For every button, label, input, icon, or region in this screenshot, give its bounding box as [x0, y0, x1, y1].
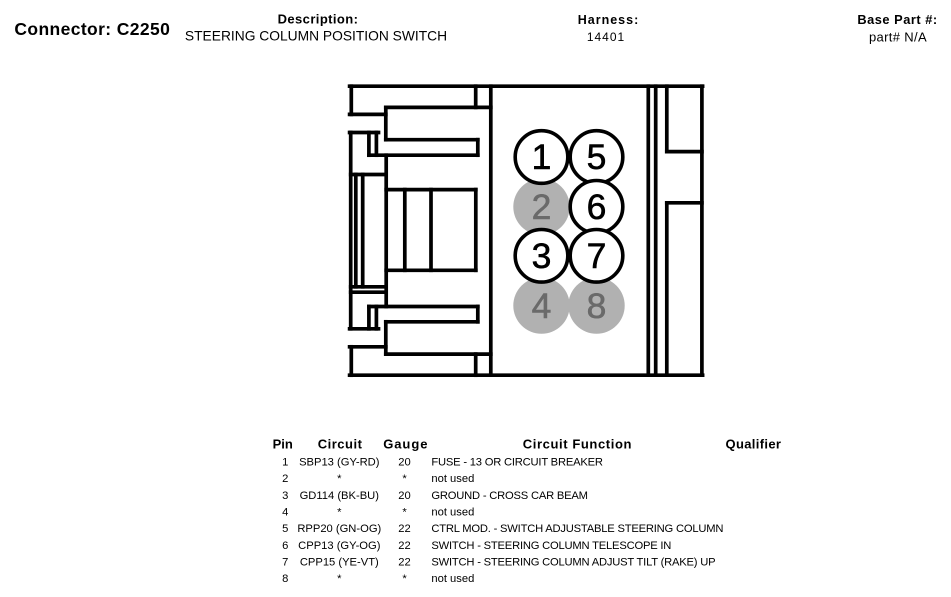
svg-text:*: * [337, 507, 342, 519]
svg-text:not used: not used [431, 507, 474, 519]
svg-text:20: 20 [398, 490, 410, 502]
svg-text:GROUND - CROSS CAR BEAM: GROUND - CROSS CAR BEAM [431, 490, 587, 502]
svg-text:Gauge: Gauge [383, 436, 428, 451]
svg-text:not used: not used [431, 473, 474, 485]
svg-text:*: * [337, 473, 342, 485]
svg-text:FUSE - 13 OR CIRCUIT BREAKER: FUSE - 13 OR CIRCUIT BREAKER [431, 456, 602, 468]
svg-text:part# N/A: part# N/A [869, 30, 927, 45]
svg-text:Base Part #:: Base Part #: [857, 12, 937, 27]
svg-text:GD114 (BK-BU): GD114 (BK-BU) [300, 490, 380, 502]
svg-text:2: 2 [282, 473, 288, 485]
svg-text:3: 3 [532, 236, 552, 276]
svg-text:SBP13 (GY-RD): SBP13 (GY-RD) [299, 456, 380, 468]
svg-text:22: 22 [398, 523, 410, 535]
svg-text:RPP20 (GN-OG): RPP20 (GN-OG) [297, 523, 381, 535]
svg-text:*: * [402, 473, 407, 485]
svg-text:4: 4 [282, 507, 288, 519]
svg-text:1: 1 [282, 456, 288, 468]
svg-text:6: 6 [587, 187, 607, 227]
svg-text:22: 22 [398, 540, 410, 552]
svg-text:Circuit Function: Circuit Function [523, 436, 632, 451]
svg-text:CTRL MOD. - SWITCH ADJUSTABLE: CTRL MOD. - SWITCH ADJUSTABLE STEERING C… [431, 523, 723, 535]
svg-text:not used: not used [431, 573, 474, 585]
svg-text:7: 7 [587, 236, 607, 276]
svg-text:14401: 14401 [587, 30, 625, 44]
svg-text:CPP15 (YE-VT): CPP15 (YE-VT) [300, 557, 379, 569]
svg-text:7: 7 [282, 557, 288, 569]
svg-text:5: 5 [587, 137, 607, 177]
svg-text:4: 4 [532, 286, 552, 326]
svg-text:Circuit: Circuit [318, 436, 363, 451]
svg-text:SWITCH - STEERING COLUMN TELES: SWITCH - STEERING COLUMN TELESCOPE IN [431, 540, 671, 552]
svg-text:Harness:: Harness: [578, 13, 640, 27]
svg-text:Description:: Description: [278, 11, 359, 26]
svg-text:*: * [337, 573, 342, 585]
svg-text:Connector: C2250: Connector: C2250 [14, 19, 170, 39]
svg-text:Qualifier: Qualifier [726, 436, 782, 451]
svg-text:20: 20 [398, 456, 410, 468]
svg-text:SWITCH - STEERING COLUMN ADJUS: SWITCH - STEERING COLUMN ADJUST TILT (RA… [431, 557, 715, 569]
svg-text:STEERING COLUMN POSITION SWITC: STEERING COLUMN POSITION SWITCH [185, 28, 447, 43]
svg-text:8: 8 [282, 573, 288, 585]
svg-text:*: * [402, 573, 407, 585]
svg-text:22: 22 [398, 557, 410, 569]
svg-text:5: 5 [282, 523, 288, 535]
svg-text:3: 3 [282, 490, 288, 502]
svg-text:CPP13 (GY-OG): CPP13 (GY-OG) [298, 540, 381, 552]
svg-text:1: 1 [532, 137, 552, 177]
svg-text:8: 8 [587, 286, 607, 326]
svg-text:Pin: Pin [273, 436, 293, 451]
svg-text:6: 6 [282, 540, 288, 552]
svg-text:*: * [402, 507, 407, 519]
svg-text:2: 2 [532, 187, 552, 227]
